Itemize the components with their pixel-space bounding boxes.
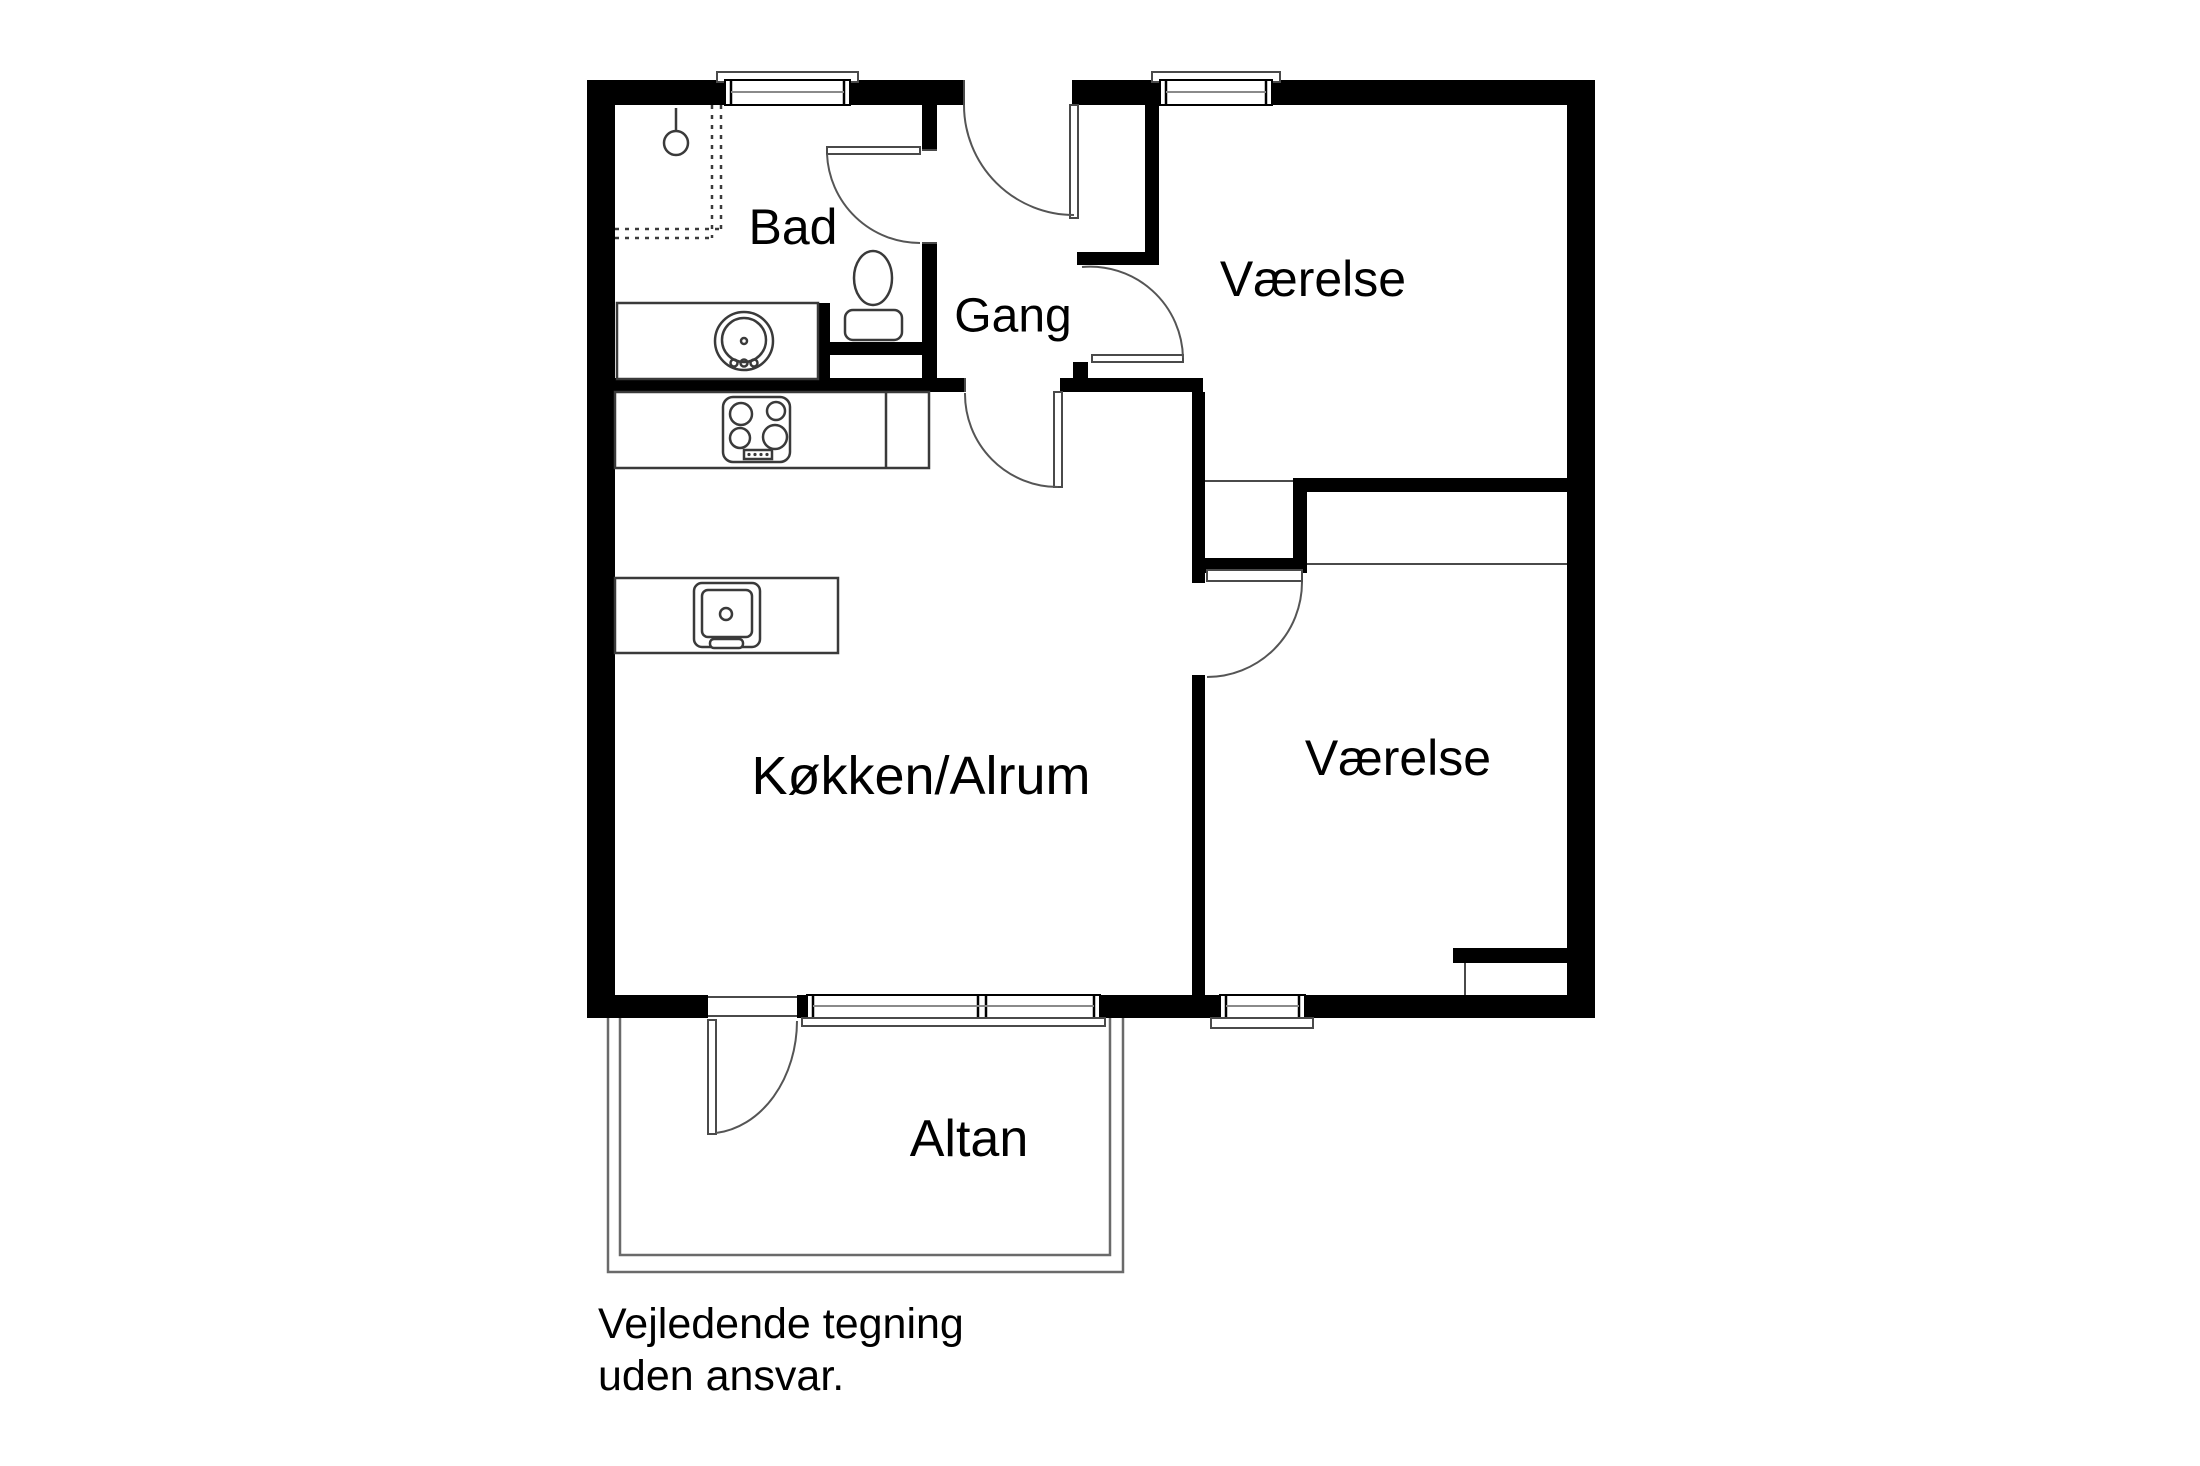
door-swing-arc xyxy=(964,105,1074,215)
balcony-railing-inner xyxy=(620,1018,1110,1255)
room-label-vaerelse-top: Værelse xyxy=(1220,250,1406,308)
balcony-railing-outer xyxy=(608,1018,1123,1272)
disclaimer-line-1: Vejledende tegning xyxy=(598,1298,964,1350)
room-label-koekken-alrum: Køkken/Alrum xyxy=(751,745,1090,807)
disclaimer-line-2: uden ansvar. xyxy=(598,1350,964,1402)
toilet-icon xyxy=(845,310,902,340)
cooktop-knob xyxy=(753,453,756,456)
window-sill xyxy=(1211,1018,1313,1028)
shower-icon xyxy=(664,131,688,155)
door-leaf xyxy=(827,147,920,154)
kitchen-door xyxy=(965,392,1062,487)
bathroom-sink-icon xyxy=(722,318,766,362)
toilet-icon xyxy=(854,251,892,305)
kitchen-island-sink-icon xyxy=(702,590,752,637)
window-sill xyxy=(802,1018,1105,1026)
balcony-railing xyxy=(608,1018,1123,1272)
entrance-door xyxy=(964,105,1078,218)
room-label-bad: Bad xyxy=(749,198,838,256)
door-swing-arc xyxy=(716,1021,797,1133)
balcony-door xyxy=(708,1020,797,1134)
door-swing-arc xyxy=(1082,267,1183,358)
room-label-altan: Altan xyxy=(910,1109,1029,1169)
door-leaf xyxy=(1092,355,1183,362)
door-swing-arc xyxy=(965,393,1058,487)
door-leaf xyxy=(708,1020,716,1134)
door-leaf xyxy=(1054,392,1062,487)
bedroom2-window xyxy=(1211,995,1313,1028)
bedroom1-window xyxy=(1152,72,1280,105)
door-swing-arc xyxy=(1207,582,1302,677)
bath-window xyxy=(717,72,858,105)
disclaimer-text: Vejledende tegning uden ansvar. xyxy=(598,1298,964,1403)
bedroom1-door xyxy=(1082,267,1183,362)
sink-tap xyxy=(710,639,743,648)
kitchen-window-band xyxy=(802,995,1105,1026)
bath-door xyxy=(827,147,920,243)
floor-plan: Bad Gang Værelse Køkken/Alrum Værelse Al… xyxy=(0,0,2200,1466)
door-leaf xyxy=(1070,105,1078,218)
room-label-gang: Gang xyxy=(954,289,1071,344)
plan-graphics-layer xyxy=(0,0,2200,1466)
cooktop-knob xyxy=(759,453,762,456)
door-swing-arc xyxy=(827,154,920,243)
room-label-vaerelse-bottom: Værelse xyxy=(1305,729,1491,787)
bedroom2-door xyxy=(1207,570,1302,677)
door-leaf xyxy=(1207,570,1302,581)
cooktop-knob xyxy=(747,453,750,456)
cooktop-knob xyxy=(765,453,768,456)
kitchen-fixtures xyxy=(615,392,929,653)
